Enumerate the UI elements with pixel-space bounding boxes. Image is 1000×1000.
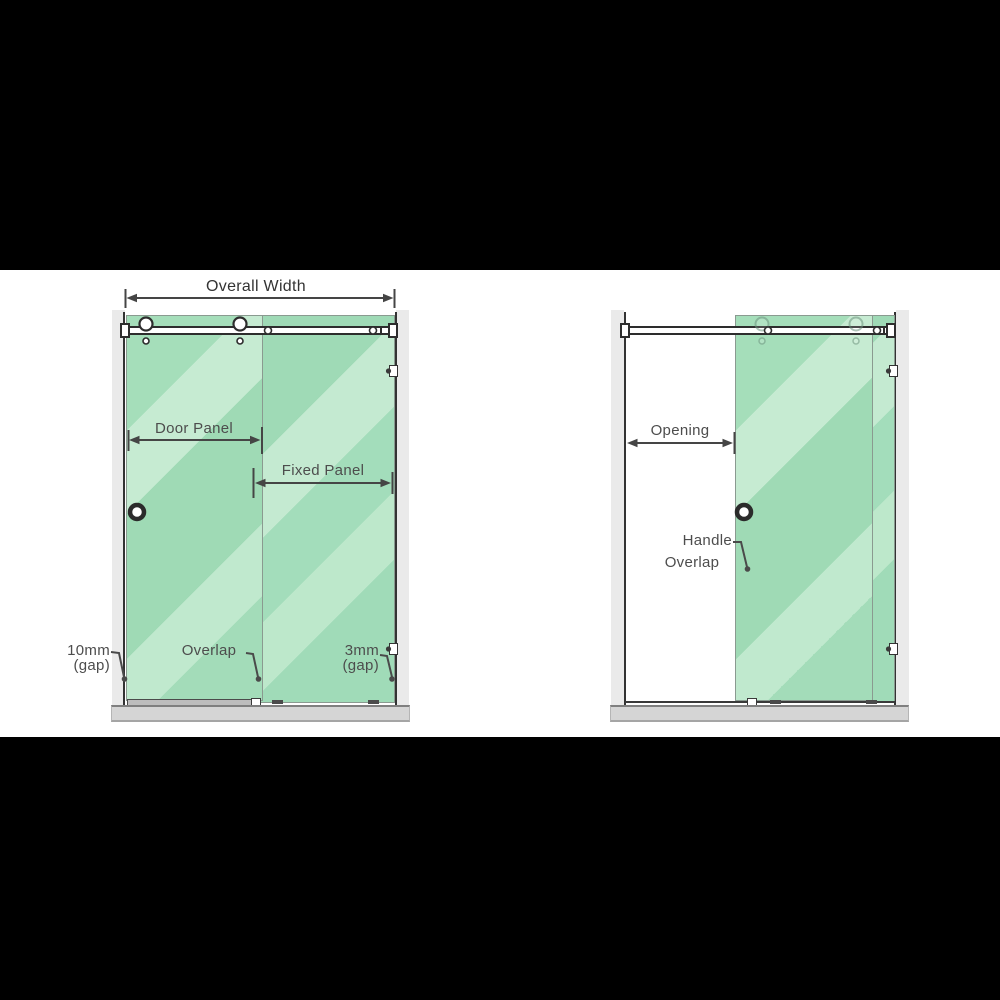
track-fastener-icon [874, 327, 881, 334]
roller-screw-icon [143, 338, 149, 344]
gap-right-unit-label: (gap) [312, 658, 379, 673]
track-fasteners-right [765, 326, 885, 335]
door-handle-knob [130, 505, 144, 519]
wall-clip-pins [386, 368, 891, 651]
roller-screw-icon [237, 338, 243, 344]
diagram-canvas: Overall Width Door Panel Fixed Panel 10m… [0, 0, 1000, 1000]
opening-label: Opening [630, 423, 730, 438]
overall-width-label: Overall Width [176, 279, 336, 294]
content-panel: Overall Width Door Panel Fixed Panel 10m… [0, 270, 1000, 737]
gap-left-value-label: 10mm [38, 643, 110, 658]
handle-overlap-leader [733, 542, 747, 567]
roller-screw-icon [759, 338, 765, 344]
track-fastener-icon [265, 327, 272, 334]
handle-overlap-label: Overlap [652, 555, 732, 570]
track-fastener-icon [370, 327, 377, 334]
roller-wheel-icon [234, 318, 247, 331]
roller-assembly [140, 318, 382, 345]
roller-screw-icon [853, 338, 859, 344]
roller-wheel-icon [850, 318, 863, 331]
gap-right-leader [380, 655, 392, 677]
gap-left-unit-label: (gap) [38, 658, 110, 673]
roller-wheel-icon [140, 318, 153, 331]
door-panel-label: Door Panel [126, 421, 262, 436]
handle-label: Handle [652, 533, 732, 548]
track-fastener-icon [765, 327, 772, 334]
overlap-leader [246, 653, 258, 677]
gap-left-leader [111, 652, 124, 677]
fixed-panel-label: Fixed Panel [252, 463, 394, 478]
gap-right-value-label: 3mm [312, 643, 379, 658]
leader-dots [122, 566, 751, 682]
door-handle-knob [737, 505, 751, 519]
overlap-label: Overlap [172, 643, 246, 658]
annotations-overlay [0, 270, 1000, 737]
